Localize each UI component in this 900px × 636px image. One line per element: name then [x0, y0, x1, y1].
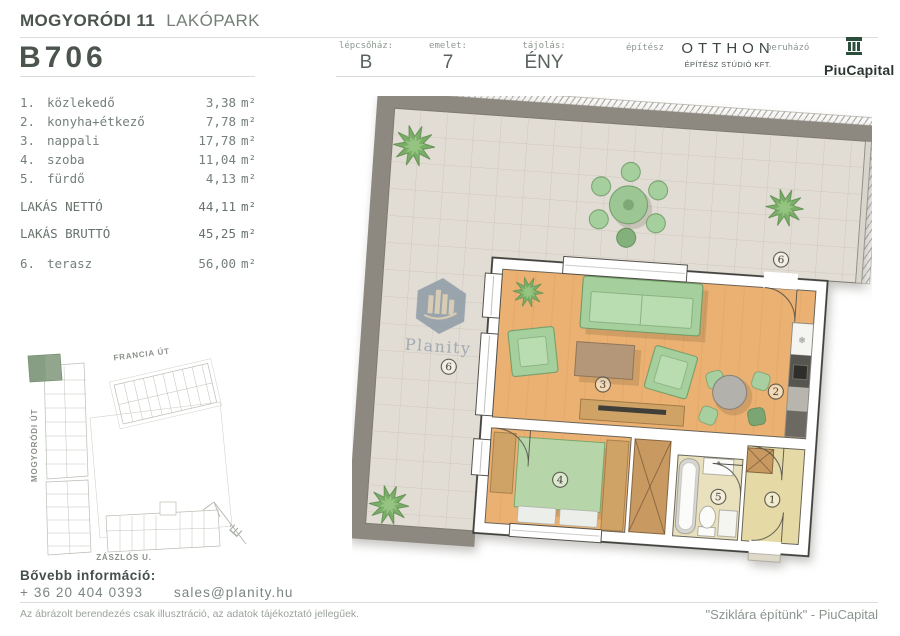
divider-unit: [20, 76, 255, 77]
nightstand: [490, 432, 516, 493]
counter-cabinet: [785, 410, 808, 437]
label-terrace-top: 6: [773, 252, 789, 268]
contact-phone: + 36 20 404 0393: [20, 585, 143, 600]
washing-machine: [718, 510, 738, 537]
room-row: 4.szoba11,04m²: [20, 150, 268, 169]
fridge-icon: ❄: [798, 336, 806, 347]
piucapital-columns-icon: [841, 36, 867, 56]
sink-basin: [793, 365, 808, 380]
developer-logo: PiuCapital: [824, 36, 884, 78]
counter-worktop: [787, 386, 810, 411]
info-floor: emelet: 7: [418, 41, 478, 74]
project-name-light: LAKÓPARK: [166, 11, 260, 30]
room-row: 1.közlekedő3,38m²: [20, 93, 268, 112]
info-orientation: tájolás: ÉNY: [506, 41, 582, 74]
svg-text:5: 5: [715, 491, 723, 503]
svg-text:1: 1: [768, 494, 776, 506]
terrace-row: 6.terasz56,00m²: [20, 254, 268, 273]
street-label-top: FRANCIA ÚT: [113, 347, 170, 363]
label-kitchen: 2: [768, 384, 784, 400]
floor-plan: Planity: [352, 96, 872, 596]
label-terrace-left: 6: [441, 359, 457, 375]
project-name-bold: MOGYORÓDI 11: [20, 11, 155, 30]
orientation-label: tájolás:: [506, 41, 582, 51]
coffee-table: [574, 342, 634, 380]
street-label-left: MOGYORÓDI ÚT: [30, 409, 39, 482]
sink: [703, 458, 734, 476]
contact-line: + 36 20 404 0393 sales@planity.hu: [20, 585, 294, 600]
pillow: [559, 509, 598, 528]
street-label-bottom: ZÁSZLÓS U.: [96, 553, 152, 562]
svg-text:3: 3: [599, 379, 607, 391]
info-staircase: lépcsőház: B: [334, 41, 398, 74]
room-list: 1.közlekedő3,38m² 2.konyha+étkező7,78m² …: [20, 93, 268, 273]
label-bathroom: 5: [710, 489, 726, 505]
contact-heading: Bővebb információ:: [20, 568, 156, 583]
divider-bottom: [20, 602, 878, 603]
room-row: 2.konyha+étkező7,78m²: [20, 112, 268, 131]
disclaimer-text: Az ábrázolt berendezés csak illusztráció…: [20, 608, 359, 620]
developer-label: beruházó: [766, 43, 809, 53]
slogan-text: "Sziklára építünk" - PiuCapital: [705, 607, 878, 622]
project-title: MOGYORÓDI 11 LAKÓPARK: [20, 11, 260, 31]
site-buildings: [44, 359, 232, 555]
architect-label: építész: [626, 43, 664, 53]
net-area-row: LAKÁS NETTÓ44,11m²: [20, 197, 268, 216]
staircase-label: lépcsőház:: [334, 41, 398, 51]
architect-subtitle: ÉPÍTÉSZ STÚDIÓ KFT.: [668, 60, 788, 69]
contact-email: sales@planity.hu: [174, 585, 294, 600]
label-bedroom: 4: [552, 472, 568, 488]
armchair: [508, 326, 559, 377]
staircase-value: B: [334, 52, 398, 74]
entrance-opening: [748, 540, 781, 555]
site-map: FRANCIA ÚT MOGYORÓDI ÚT ZÁSZLÓS U. É: [14, 330, 264, 570]
label-hallway: 1: [764, 492, 780, 508]
svg-text:6: 6: [777, 254, 785, 266]
floorplan-sheet: MOGYORÓDI 11 LAKÓPARK B706 lépcsőház: B …: [0, 0, 900, 636]
unit-id: B706: [19, 41, 107, 75]
room-row: 5.fürdő4,13m²: [20, 169, 268, 188]
orientation-value: ÉNY: [506, 52, 582, 74]
highlighted-unit-shade: [28, 355, 46, 382]
label-living: 3: [595, 377, 611, 393]
developer-name: PiuCapital: [824, 62, 884, 78]
kitchen-door-opening: [763, 271, 798, 289]
sofa: [580, 276, 703, 336]
wardrobe: [629, 439, 671, 534]
floor-label: emelet:: [418, 41, 478, 51]
svg-text:6: 6: [445, 361, 453, 373]
pillow: [517, 506, 556, 525]
gross-area-row: LAKÁS BRUTTÓ45,25m²: [20, 224, 268, 243]
room-row: 3.nappali17,78m²: [20, 131, 268, 150]
svg-text:2: 2: [772, 386, 780, 398]
hall-wardrobe: [746, 448, 774, 474]
floor-value: 7: [418, 52, 478, 74]
divider-top: [20, 37, 878, 38]
compass-north-letter: É: [226, 522, 245, 541]
divider-info: [336, 76, 878, 77]
svg-text:4: 4: [556, 474, 564, 486]
